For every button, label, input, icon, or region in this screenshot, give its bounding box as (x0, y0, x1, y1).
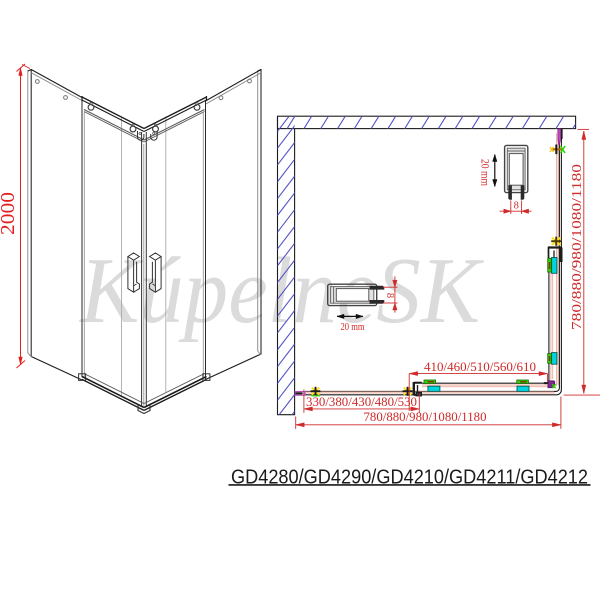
svg-text:780/880/980/1080/1180: 780/880/980/1080/1180 (364, 410, 487, 424)
svg-text:20 mm: 20 mm (341, 321, 365, 333)
svg-text:8: 8 (514, 201, 519, 212)
svg-text:20 mm: 20 mm (479, 159, 491, 186)
svg-text:2000: 2000 (0, 192, 19, 235)
svg-text:780/880/980/1080/1180: 780/880/980/1080/1180 (570, 164, 585, 330)
svg-text:8: 8 (384, 293, 395, 298)
svg-text:330/380/430/480/530: 330/380/430/480/530 (306, 395, 417, 409)
svg-text:410/460/510/560/610: 410/460/510/560/610 (424, 360, 536, 374)
